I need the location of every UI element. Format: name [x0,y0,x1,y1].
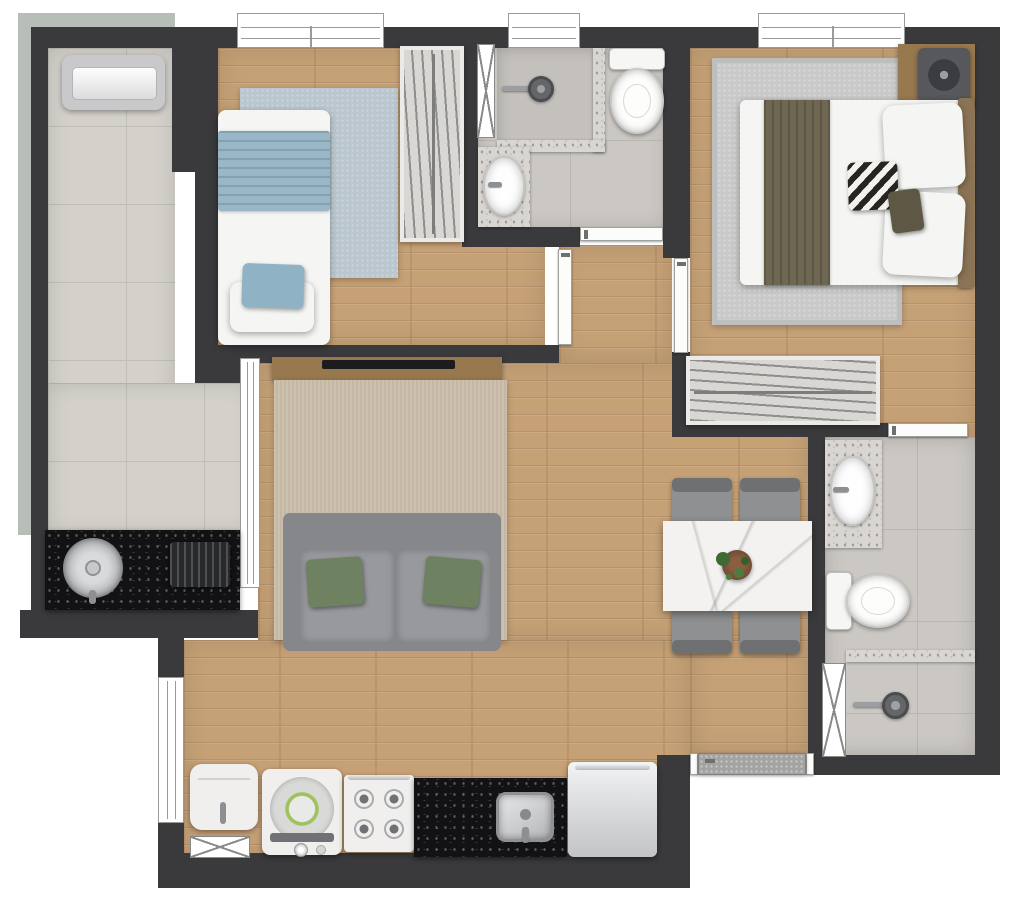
kitchen-window [158,677,184,823]
hall-floor [559,245,672,363]
wall [663,27,690,258]
washer-button [316,845,326,855]
tv [322,360,455,369]
sink-drain [520,809,531,820]
built-in-grill [170,542,230,587]
dining-chair [672,608,732,654]
shower-divider-v [593,48,605,152]
window-mullion [832,26,834,48]
sink-faucet [833,487,849,492]
entrance-door-frame-right [806,753,814,775]
washer-lid [270,777,334,841]
master-wardrobe-rack [686,356,880,425]
ac-condenser-unit [62,55,165,110]
toilet-bowl [610,68,664,134]
master-bedroom-door [674,258,688,353]
sofa [283,513,501,651]
bathroom1-shower-area [497,48,605,152]
entrance-door-frame-left [690,753,698,775]
burner [354,819,374,839]
green-cushion-right [422,556,482,609]
sink-drain [85,560,101,576]
fan-unit [918,48,970,102]
shower-head [882,692,909,719]
wall [672,423,888,437]
wardrobe-rail [432,54,435,234]
wardrobe-rail [694,391,872,394]
shower-glass-divider [846,650,975,662]
single-bed-blanket [218,131,330,211]
sink-faucet [522,827,529,843]
shower-head [528,76,554,102]
dining-chair [672,478,732,524]
bedroom1-door [558,249,572,345]
sofa-back [297,513,487,555]
balcony-floor-lower [48,383,253,535]
duct-shaft [822,663,846,757]
heater-pipe [220,802,226,824]
water-heater [190,764,258,830]
wall [20,610,258,638]
door-hinge [677,262,686,266]
fridge [568,762,657,857]
chair-backrest [740,478,800,492]
plant-leaves [716,552,730,566]
burner [384,789,404,809]
ac-panel [72,67,157,100]
kitchen-sink [496,792,554,842]
wall [975,27,1000,775]
bedroom1-window [237,13,384,48]
toilet-bowl [846,574,910,628]
burner [354,789,374,809]
window-mullion [310,26,312,48]
duct-shaft [477,44,495,138]
wall [807,755,1000,775]
entrance-door [698,753,806,775]
sink-faucet [488,182,502,187]
bathroom1-window [508,13,580,48]
foyer-floor [690,640,808,755]
green-cushion-left [305,556,364,608]
fridge-handle [575,765,650,770]
floor-plan [0,0,1024,899]
bathroom1-door [580,227,663,241]
chair-backrest [740,640,800,654]
chair-backrest [672,640,732,654]
fan-blades [928,59,960,91]
washer-knob [294,843,308,857]
duct-shaft [190,836,250,858]
bedroom1-wardrobe-rack [400,46,464,242]
toilet-tank [609,48,665,70]
door-hinge [561,253,570,257]
wall [31,27,48,610]
washing-machine [262,769,342,855]
door-hinge [892,426,896,435]
door-hinge [584,230,588,239]
stove [344,775,414,852]
sofa-arm-left [283,518,303,644]
sink-faucet [89,590,96,604]
wall [195,172,218,358]
dining-chair [740,608,800,654]
stove-handle [348,775,410,780]
single-bed-blue-pillow [241,263,304,309]
olive-blanket [764,100,830,285]
burner [384,819,404,839]
wall [158,853,668,888]
dining-chair [740,478,800,524]
door-lock [705,759,715,763]
washer-detergent-slot [270,833,334,842]
heater-line [198,778,250,780]
bathroom2-door [888,423,968,437]
wall-column [172,27,218,172]
wall [462,27,478,247]
wall [462,227,580,247]
master-bedroom-window [758,13,905,48]
balcony-round-sink [63,538,123,598]
facade-band-top [18,13,175,27]
balcony-glass-door [240,358,260,588]
facade-band-left [18,13,31,535]
olive-accent-pillow [887,188,925,234]
chair-backrest [672,478,732,492]
